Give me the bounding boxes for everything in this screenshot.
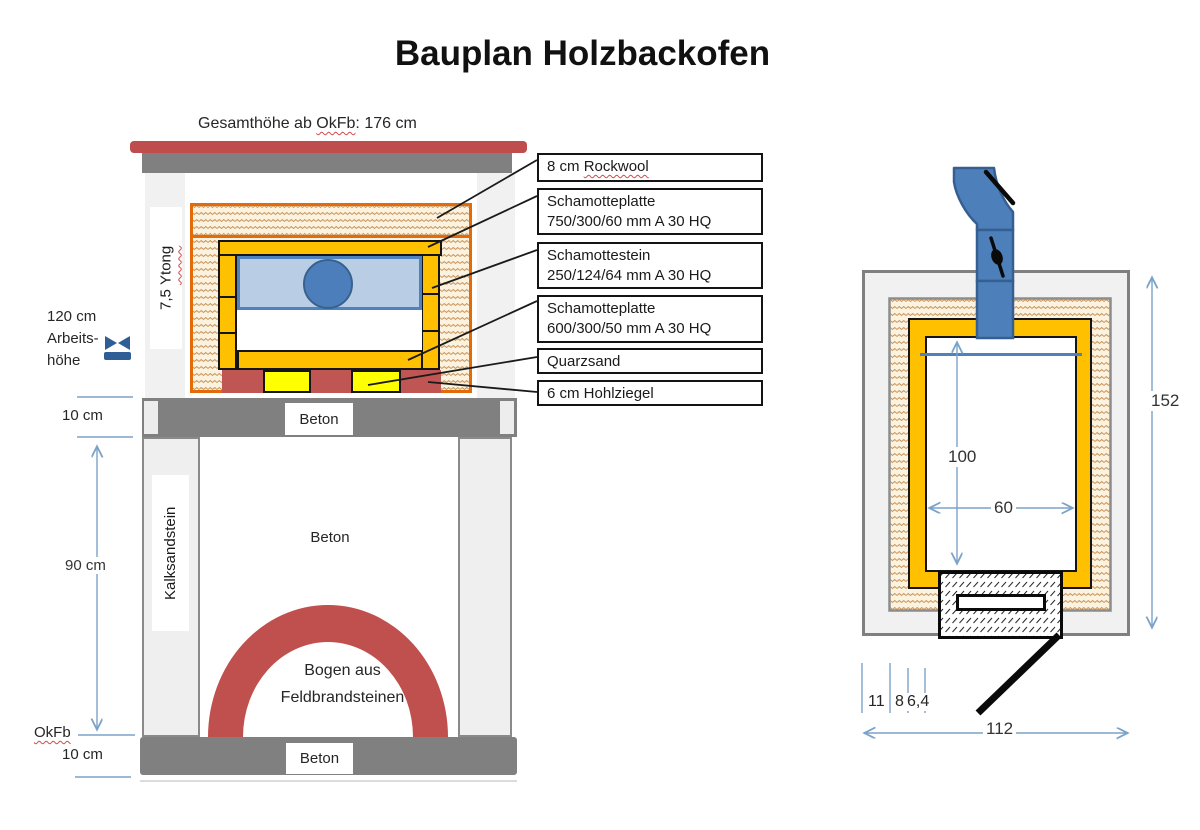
beton-label-middle-text: Beton xyxy=(310,529,349,546)
dim-wall-label: 90 cm xyxy=(62,557,109,574)
total-height-suffix: : 176 cm xyxy=(355,115,416,132)
slab-end-cap xyxy=(500,401,514,434)
ground-line xyxy=(140,780,517,782)
brick-joint xyxy=(219,332,236,334)
brick-joint xyxy=(422,293,439,295)
base-wall-right xyxy=(458,437,512,737)
callout-rockwool: 8 cm Rockwool xyxy=(537,153,763,182)
callout-line: Quarzsand xyxy=(547,353,620,370)
schamotte-left-wall xyxy=(218,254,237,370)
callout-line: 600/300/50 mm A 30 HQ xyxy=(547,320,711,337)
layer-dim-64: 6,4 xyxy=(907,693,929,711)
work-height-line2: Arbeits- xyxy=(47,330,99,347)
callout-line: Schamottestein xyxy=(547,247,650,264)
dim-outer-width-label: 112 xyxy=(983,719,1016,739)
ytong-text: 7,5 Ytong xyxy=(158,246,175,310)
page-title: Bauplan Holzbackofen xyxy=(0,34,1165,74)
ytong-prefix: 7,5 xyxy=(158,285,175,310)
callout-rockwool-prefix: 8 cm xyxy=(547,158,584,175)
dim-outer-height-label: 152 xyxy=(1148,391,1182,411)
dim-slab-top-label: 10 cm xyxy=(62,407,103,424)
door-slot xyxy=(956,594,1046,611)
baking-chamber xyxy=(237,310,422,350)
kalksandstein-label: Kalksandstein xyxy=(152,475,189,631)
arch-label-line1: Bogen aus xyxy=(255,662,430,680)
okfb-text: OkFb xyxy=(34,724,71,741)
dim-inner-width-text: 60 xyxy=(994,498,1013,517)
layer-dim-8: 8 xyxy=(895,693,904,711)
beton-label-upper-text: Beton xyxy=(299,411,338,428)
total-height-note: Gesamthöhe ab OkFb: 176 cm xyxy=(198,115,417,133)
okfb-label: OkFb xyxy=(34,724,71,741)
layer-dim-8-text: 8 xyxy=(895,693,904,710)
layer-dim-64-text: 6,4 xyxy=(907,693,929,710)
blueprint-canvas: Bauplan Holzbackofen Gesamthöhe ab OkFb:… xyxy=(0,0,1200,830)
total-height-prefix: Gesamthöhe ab xyxy=(198,115,316,132)
dim-outer-width-text: 112 xyxy=(986,719,1013,738)
dim-slab-top-text: 10 cm xyxy=(62,407,103,424)
clamp-icon xyxy=(104,336,132,361)
arch-label-text1: Bogen aus xyxy=(304,662,381,679)
callout-quarzsand: Quarzsand xyxy=(537,348,763,374)
brick-joint xyxy=(422,330,439,332)
layer-dim-11-text: 11 xyxy=(868,693,885,710)
hollow-brick-block xyxy=(311,370,351,393)
dim-outer-height-text: 152 xyxy=(1151,391,1179,410)
callout-schamotteplatte-750: Schamotteplatte 750/300/60 mm A 30 HQ xyxy=(537,188,763,235)
ytong-label: 7,5 Ytong xyxy=(150,207,182,349)
door-swing-line xyxy=(978,635,1059,713)
chimney-pipe xyxy=(950,162,1020,340)
hollow-brick-block xyxy=(401,370,441,393)
roof-cap xyxy=(130,141,527,153)
top-concrete-bar xyxy=(142,153,512,173)
hollow-brick-block xyxy=(222,370,263,393)
quartz-sand-block xyxy=(351,370,401,393)
right-column xyxy=(477,173,515,398)
pipe-elbow xyxy=(954,168,1013,230)
beton-label-lower: Beton xyxy=(286,743,353,774)
beton-label-middle: Beton xyxy=(270,529,390,546)
dim-inner-width-label: 60 xyxy=(991,498,1016,518)
dim-inner-height-text: 100 xyxy=(948,447,976,466)
layer-dim-11: 11 xyxy=(868,693,885,711)
dim-wall-text: 90 cm xyxy=(65,557,106,574)
callout-hohlziegel: 6 cm Hohlziegel xyxy=(537,380,763,406)
slab-end-cap xyxy=(144,401,158,434)
dim-slab-bottom-text: 10 cm xyxy=(62,746,103,763)
callout-rockwool-term: Rockwool xyxy=(584,158,649,175)
beton-label-upper: Beton xyxy=(285,403,353,435)
flue-opening-circle xyxy=(303,259,353,309)
arch-label-line2: Feldbrandsteinen xyxy=(255,689,430,707)
kalksandstein-text: Kalksandstein xyxy=(162,506,179,599)
callout-line: 750/300/60 mm A 30 HQ xyxy=(547,213,711,230)
callout-line: Schamotteplatte xyxy=(547,300,655,317)
callout-line: 6 cm Hohlziegel xyxy=(547,385,654,402)
work-height-label: 120 cm Arbeits- höhe xyxy=(47,306,99,372)
callout-line: 250/124/64 mm A 30 HQ xyxy=(547,267,711,284)
dim-slab-bottom-label: 10 cm xyxy=(62,746,103,763)
beton-label-lower-text: Beton xyxy=(300,750,339,767)
pipe-bottom-segment xyxy=(977,281,1013,338)
schamotte-top-plate xyxy=(218,240,442,256)
arch-label-text2: Feldbrandsteinen xyxy=(281,689,405,706)
brick-joint xyxy=(219,296,236,298)
total-height-okfb: OkFb xyxy=(316,115,355,132)
work-height-line1: 120 cm xyxy=(47,308,96,325)
callout-schamottestein: Schamottestein 250/124/64 mm A 30 HQ xyxy=(537,242,763,289)
ytong-term: Ytong xyxy=(158,246,175,285)
plan-front-edge-line xyxy=(920,353,1082,356)
schamotte-right-wall xyxy=(421,254,440,370)
callout-schamotteplatte-600: Schamotteplatte 600/300/50 mm A 30 HQ xyxy=(537,295,763,343)
quartz-sand-block xyxy=(263,370,311,393)
dim-inner-height-label: 100 xyxy=(945,447,979,467)
work-height-line3: höhe xyxy=(47,352,80,369)
callout-line: Schamotteplatte xyxy=(547,193,655,210)
schamotte-floor-plate xyxy=(237,350,423,370)
